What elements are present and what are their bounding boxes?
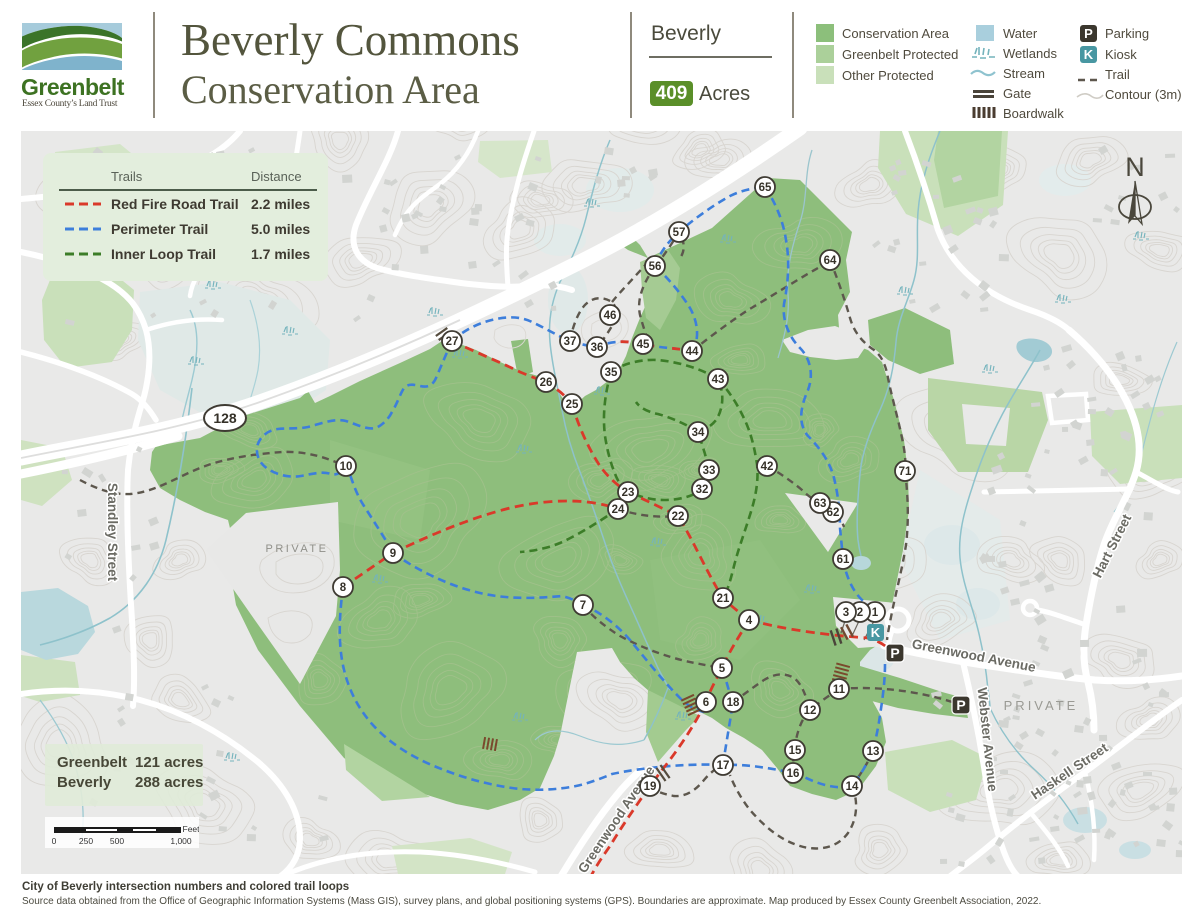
svg-text:65: 65 (759, 182, 772, 194)
svg-text:42: 42 (761, 461, 774, 473)
svg-text:26: 26 (540, 377, 553, 389)
svg-text:1: 1 (872, 607, 879, 619)
svg-text:21: 21 (717, 593, 730, 605)
svg-text:5: 5 (719, 663, 726, 675)
svg-text:64: 64 (824, 255, 837, 267)
svg-text:22: 22 (672, 511, 685, 523)
svg-text:PRIVATE: PRIVATE (1004, 698, 1079, 713)
svg-text:34: 34 (692, 427, 705, 439)
svg-text:0: 0 (52, 836, 57, 846)
svg-text:13: 13 (867, 746, 880, 758)
svg-text:32: 32 (696, 484, 709, 496)
svg-text:36: 36 (591, 342, 604, 354)
svg-text:46: 46 (604, 310, 617, 322)
svg-text:43: 43 (712, 374, 725, 386)
svg-text:4: 4 (746, 615, 753, 627)
svg-text:11: 11 (833, 684, 846, 696)
svg-text:250: 250 (79, 836, 93, 846)
svg-text:15: 15 (789, 745, 802, 757)
svg-text:2: 2 (857, 607, 863, 619)
svg-text:63: 63 (814, 498, 827, 510)
svg-text:Feet: Feet (183, 824, 200, 834)
svg-text:K: K (871, 625, 881, 640)
svg-text:16: 16 (787, 768, 800, 780)
svg-text:33: 33 (703, 465, 716, 477)
svg-text:27: 27 (446, 336, 459, 348)
svg-text:61: 61 (837, 554, 850, 566)
svg-text:56: 56 (649, 261, 662, 273)
svg-text:12: 12 (804, 705, 817, 717)
svg-text:37: 37 (564, 336, 577, 348)
svg-text:8: 8 (340, 582, 347, 594)
svg-text:23: 23 (622, 487, 635, 499)
svg-text:500: 500 (110, 836, 124, 846)
svg-text:71: 71 (899, 466, 912, 478)
svg-text:P: P (890, 645, 899, 661)
svg-text:PRIVATE: PRIVATE (266, 543, 329, 555)
svg-text:10: 10 (340, 461, 353, 473)
svg-text:6: 6 (703, 697, 709, 709)
svg-text:N: N (1125, 152, 1145, 182)
svg-text:57: 57 (673, 227, 686, 239)
svg-text:Standley Street: Standley Street (105, 483, 120, 582)
svg-text:25: 25 (566, 399, 579, 411)
svg-text:3: 3 (843, 607, 849, 619)
svg-text:P: P (956, 697, 965, 713)
svg-text:7: 7 (580, 600, 586, 612)
svg-text:35: 35 (605, 367, 618, 379)
svg-text:17: 17 (717, 760, 730, 772)
svg-text:24: 24 (612, 504, 625, 516)
svg-text:45: 45 (637, 339, 650, 351)
svg-text:1,000: 1,000 (170, 836, 192, 846)
svg-text:9: 9 (390, 548, 396, 560)
svg-text:14: 14 (846, 781, 859, 793)
svg-text:128: 128 (213, 410, 237, 426)
svg-text:44: 44 (686, 346, 699, 358)
svg-text:19: 19 (644, 781, 657, 793)
svg-text:18: 18 (727, 697, 740, 709)
